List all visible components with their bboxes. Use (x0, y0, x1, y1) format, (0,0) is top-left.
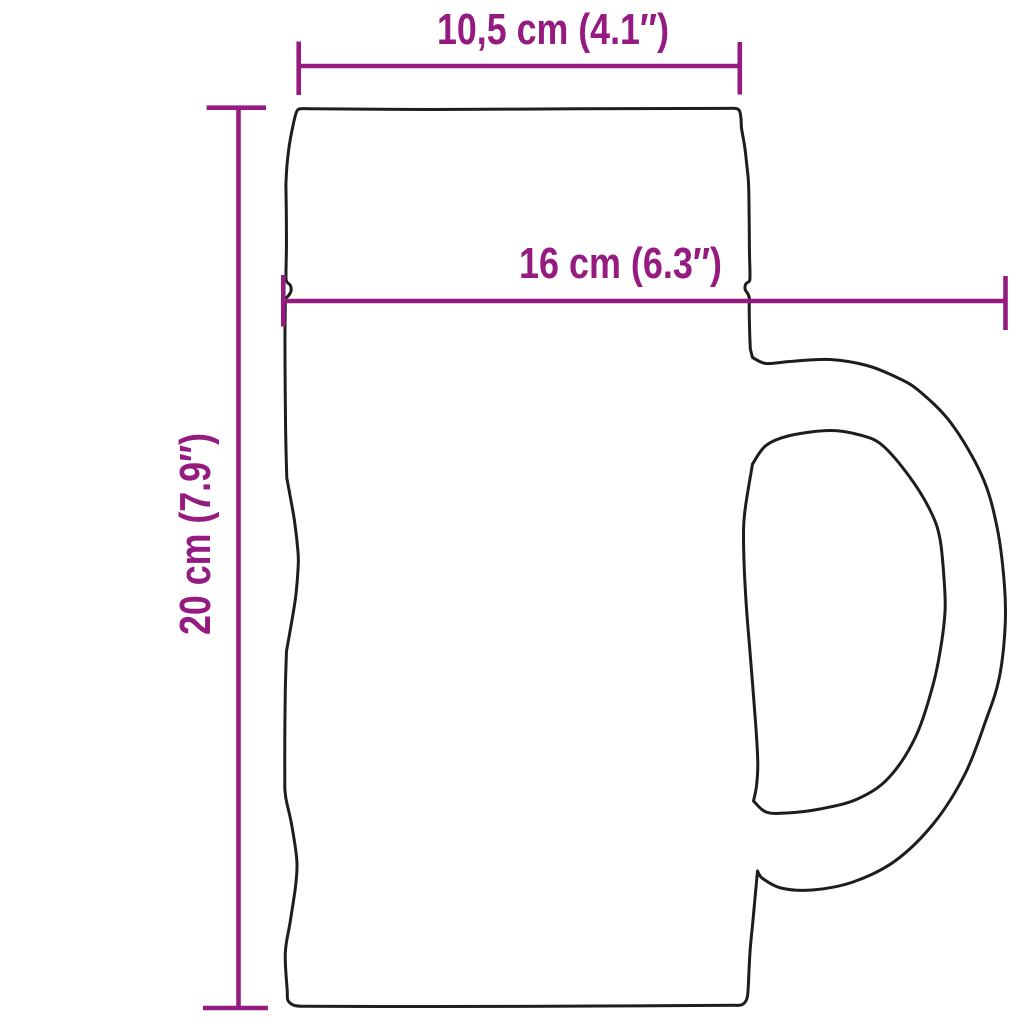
svg-text:16 cm (6.3″): 16 cm (6.3″) (519, 239, 722, 288)
svg-text:20 cm (7.9″): 20 cm (7.9″) (171, 433, 220, 635)
svg-text:10,5 cm (4.1″): 10,5 cm (4.1″) (437, 5, 669, 54)
